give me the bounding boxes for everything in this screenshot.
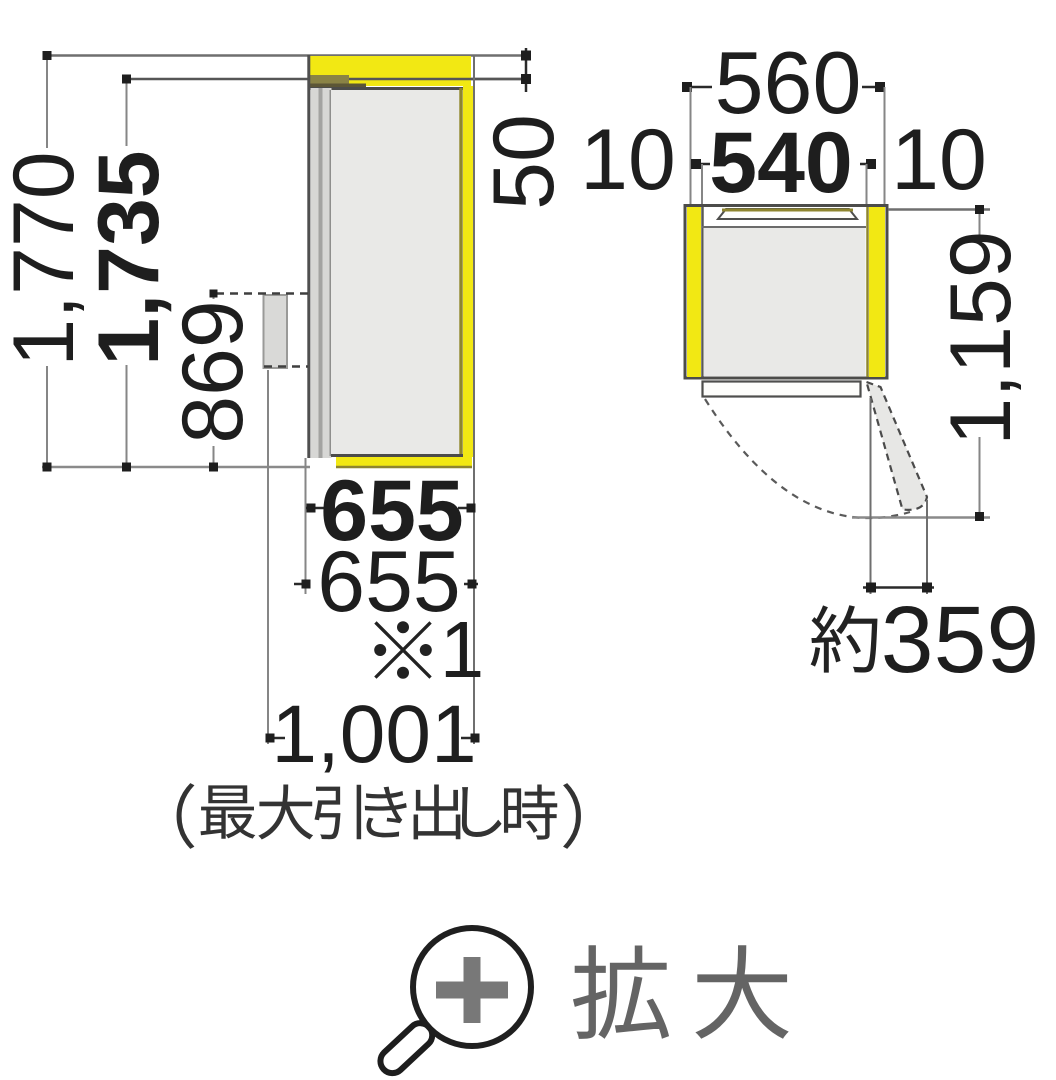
svg-text:359: 359: [881, 587, 1040, 693]
svg-text:1,001: 1,001: [271, 689, 476, 780]
svg-text:869: 869: [165, 300, 261, 444]
svg-text:1,770: 1,770: [0, 151, 92, 366]
svg-text:10: 10: [580, 112, 676, 208]
svg-text:10: 10: [891, 112, 987, 208]
svg-text:540: 540: [709, 115, 853, 211]
svg-text:1,735: 1,735: [81, 150, 177, 365]
svg-text:50: 50: [476, 114, 572, 210]
svg-text:1,159: 1,159: [933, 230, 1029, 445]
svg-text:1: 1: [440, 605, 485, 694]
